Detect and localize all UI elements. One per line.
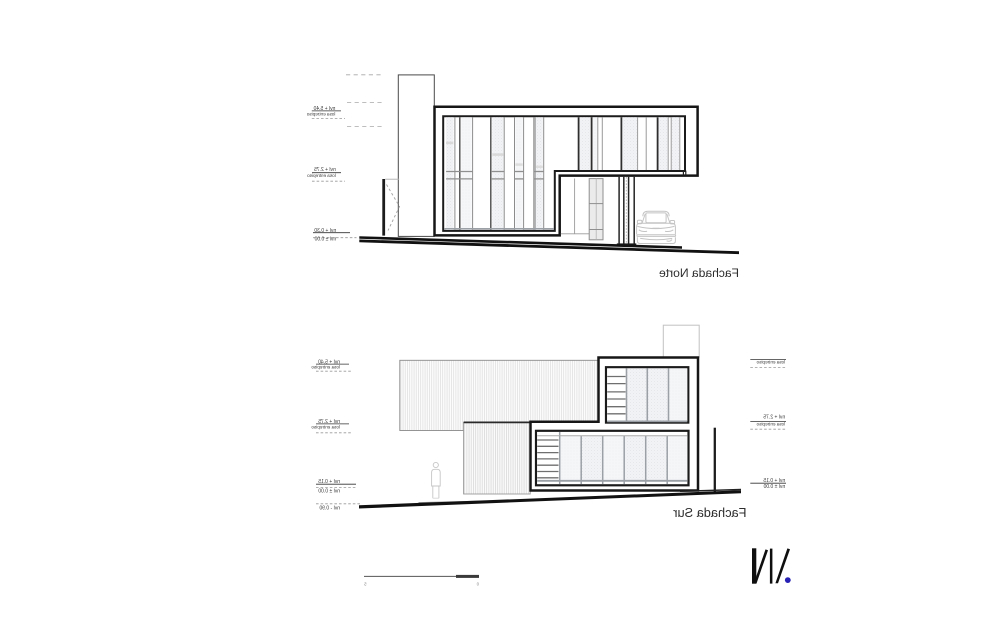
svg-text:nvl ± 0.00: nvl ± 0.00 [763,484,785,490]
svg-text:nvl ± 0.00: nvl ± 0.00 [318,489,340,495]
svg-text:nvl - 0.90: nvl - 0.90 [319,506,340,512]
svg-text:losa entrepiso: losa entrepiso [311,424,340,429]
svg-text:losa entrepiso: losa entrepiso [756,360,785,365]
svg-text:losa entrepiso: losa entrepiso [307,173,336,178]
svg-text:nvl ± 0.00: nvl ± 0.00 [314,237,336,243]
svg-text:Fachada Sur: Fachada Sur [672,505,746,520]
svg-text:nvl + 2.75: nvl + 2.75 [763,414,785,420]
svg-text:losa entrepiso: losa entrepiso [306,111,335,116]
svg-text:losa entrepiso: losa entrepiso [756,422,785,427]
svg-text:losa entrepiso: losa entrepiso [311,364,340,369]
svg-text:Fachada Norte: Fachada Norte [659,266,739,280]
